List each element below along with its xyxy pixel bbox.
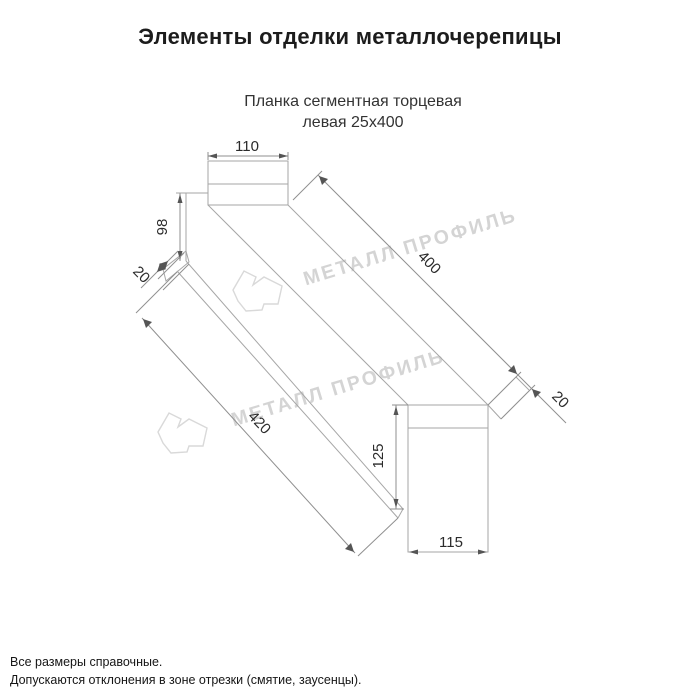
dim-label-98: 98	[154, 219, 171, 236]
brand-logo-watermark-2	[158, 413, 207, 453]
dim-label-115: 115	[439, 534, 463, 551]
bottom-tip-edge	[398, 509, 403, 518]
footer-note-1: Все размеры справочные.	[10, 655, 162, 669]
footer-note-2: Допускаются отклонения в зоне отрезки (с…	[10, 673, 362, 687]
technical-drawing: МЕТАЛЛ ПРОФИЛЬ МЕТАЛЛ ПРОФИЛЬ 110	[0, 0, 700, 700]
dimension-top-width: 110	[208, 138, 288, 160]
dim-label-110: 110	[235, 138, 259, 155]
dim-label-20-left: 20	[129, 263, 153, 287]
hem-long-edge	[177, 271, 398, 518]
dimension-bottom-width: 115	[409, 534, 487, 555]
brand-watermark-group: МЕТАЛЛ ПРОФИЛЬ МЕТАЛЛ ПРОФИЛЬ	[158, 204, 520, 453]
brand-logo-watermark-1	[233, 271, 282, 311]
dimension-left-height: 98	[154, 193, 183, 261]
left-end-top-flange	[208, 161, 288, 205]
right-end-face	[408, 405, 488, 552]
right-hem-inner-edge	[488, 405, 501, 419]
dim-label-125: 125	[370, 443, 387, 468]
brand-watermark-text-1: МЕТАЛЛ ПРОФИЛЬ	[301, 204, 520, 290]
dimension-right-hem: 20	[488, 372, 572, 423]
dimension-left-hem: 20	[129, 251, 189, 290]
